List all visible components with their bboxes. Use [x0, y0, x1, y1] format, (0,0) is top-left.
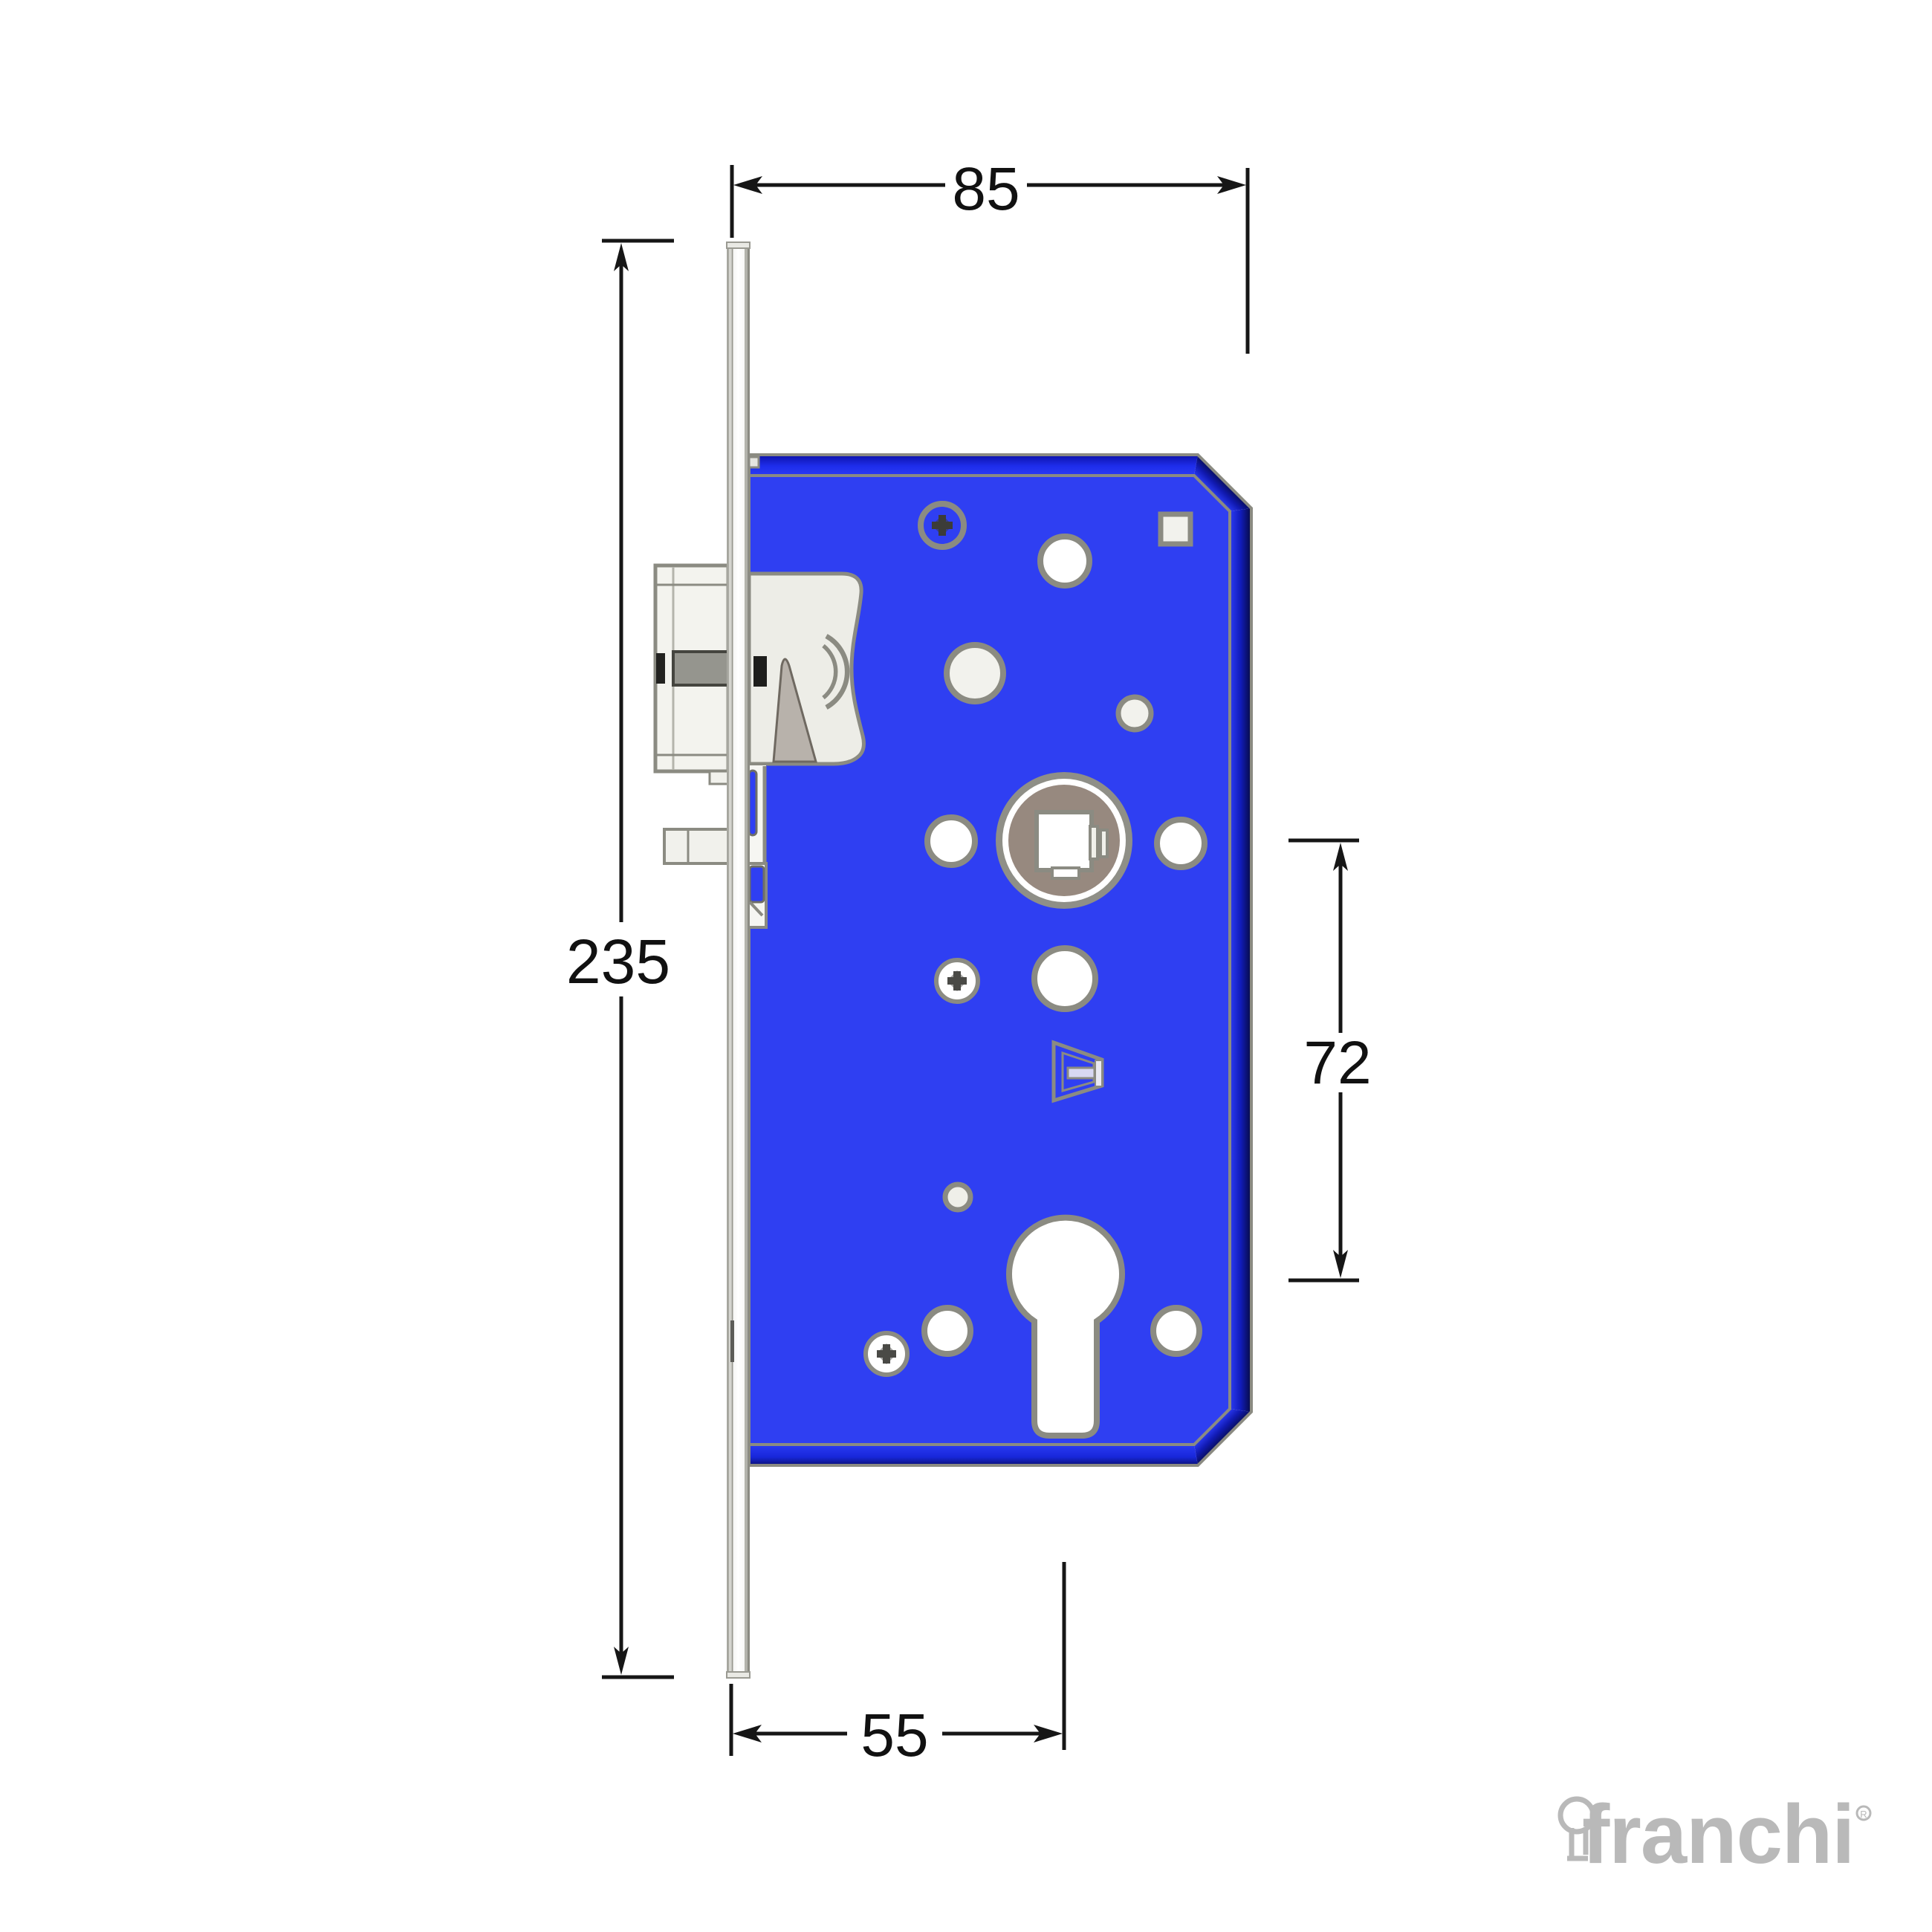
- svg-text:55: 55: [860, 1702, 928, 1769]
- svg-text:235: 235: [566, 927, 670, 996]
- svg-text:72: 72: [1303, 1029, 1371, 1097]
- svg-text:franchi: franchi: [1582, 1788, 1854, 1881]
- svg-text:R: R: [1860, 1809, 1867, 1820]
- svg-text:85: 85: [952, 155, 1020, 223]
